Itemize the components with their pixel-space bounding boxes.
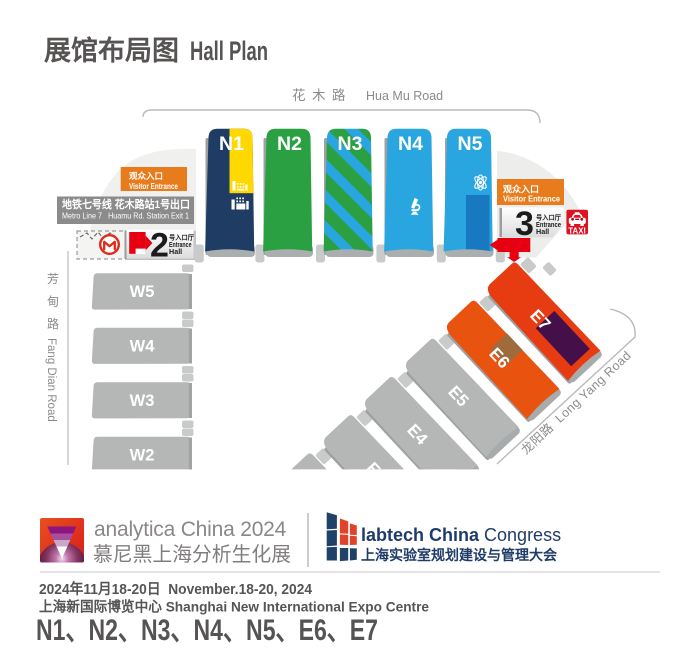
svg-text:上海新国际博览中心 Shanghai New Interna: 上海新国际博览中心 Shanghai New International Exp… <box>39 599 429 615</box>
svg-text:analytica China 2024: analytica China 2024 <box>94 518 287 541</box>
svg-text:W2: W2 <box>130 447 155 465</box>
svg-text:3: 3 <box>515 205 534 243</box>
svg-text:2: 2 <box>150 227 169 265</box>
svg-text:Hua Mu Road: Hua Mu Road <box>366 89 443 103</box>
svg-text:Hall Plan: Hall Plan <box>190 36 268 66</box>
svg-text:路: 路 <box>47 316 59 331</box>
svg-text:W3: W3 <box>130 392 155 410</box>
svg-text:labtech China Congress: labtech China Congress <box>361 525 561 545</box>
svg-text:木: 木 <box>312 88 326 103</box>
svg-text:芳: 芳 <box>47 272 59 286</box>
svg-text:W4: W4 <box>130 338 156 356</box>
svg-text:甸: 甸 <box>47 295 59 309</box>
svg-text:N1、N2、N3、N4、N5、E6、E7: N1、N2、N3、N4、N5、E6、E7 <box>36 614 378 647</box>
svg-text:Hall: Hall <box>536 227 549 236</box>
svg-text:2024年11月18-20日 November.18-20: 2024年11月18-20日 November.18-20, 2024 <box>39 580 312 598</box>
svg-text:Metro Line 7 Huamu Rd. Stati: Metro Line 7 Huamu Rd. Station Exit 1 <box>62 212 189 221</box>
svg-text:展馆布局图: 展馆布局图 <box>44 35 179 66</box>
svg-text:Visitor Entrance: Visitor Entrance <box>503 193 560 203</box>
svg-text:W5: W5 <box>130 283 155 301</box>
svg-text:N2: N2 <box>277 133 302 155</box>
svg-text:路: 路 <box>332 88 346 103</box>
svg-text:上海实验室规划建设与管理大会: 上海实验室规划建设与管理大会 <box>361 547 558 563</box>
svg-text:TAXI: TAXI <box>568 227 585 236</box>
svg-text:Fang Dian Road: Fang Dian Road <box>45 338 57 422</box>
svg-text:地铁七号线 花木路站1号出口: 地铁七号线 花木路站1号出口 <box>62 197 190 211</box>
svg-text:N1: N1 <box>219 133 244 155</box>
svg-text:Visitor Entrance: Visitor Entrance <box>129 182 178 191</box>
svg-text:慕尼黑上海分析生化展: 慕尼黑上海分析生化展 <box>93 543 291 566</box>
svg-text:观众入口: 观众入口 <box>129 171 163 181</box>
svg-text:N4: N4 <box>398 133 423 155</box>
svg-text:N3: N3 <box>338 133 363 155</box>
svg-text:N5: N5 <box>458 133 483 155</box>
svg-text:花: 花 <box>292 88 306 103</box>
svg-text:Hall: Hall <box>169 247 182 256</box>
